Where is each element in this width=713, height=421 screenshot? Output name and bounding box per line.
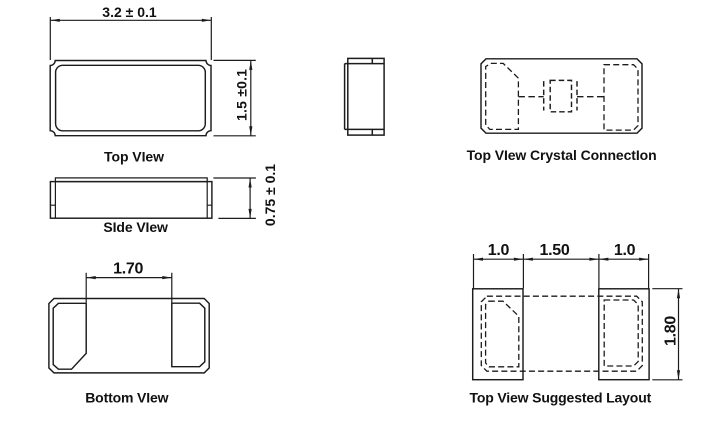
svg-text:Bottom VIew: Bottom VIew [85,389,168,405]
svg-text:1.50: 1.50 [540,242,570,259]
svg-text:1.80: 1.80 [662,316,679,346]
svg-text:1.0: 1.0 [488,242,510,259]
svg-text:0.75 ± 0.1: 0.75 ± 0.1 [262,164,278,226]
svg-text:1.5 ±0.1: 1.5 ±0.1 [233,69,249,121]
svg-text:1.70: 1.70 [113,260,143,277]
svg-text:SIde VIew: SIde VIew [103,219,168,235]
svg-text:3.2 ± 0.1: 3.2 ± 0.1 [102,4,157,20]
svg-text:Top VIew: Top VIew [104,149,164,165]
svg-text:Top VIew Crystal ConnectIon: Top VIew Crystal ConnectIon [467,147,657,163]
svg-text:1.0: 1.0 [614,242,636,259]
svg-text:Top View Suggested Layout: Top View Suggested Layout [469,390,651,406]
